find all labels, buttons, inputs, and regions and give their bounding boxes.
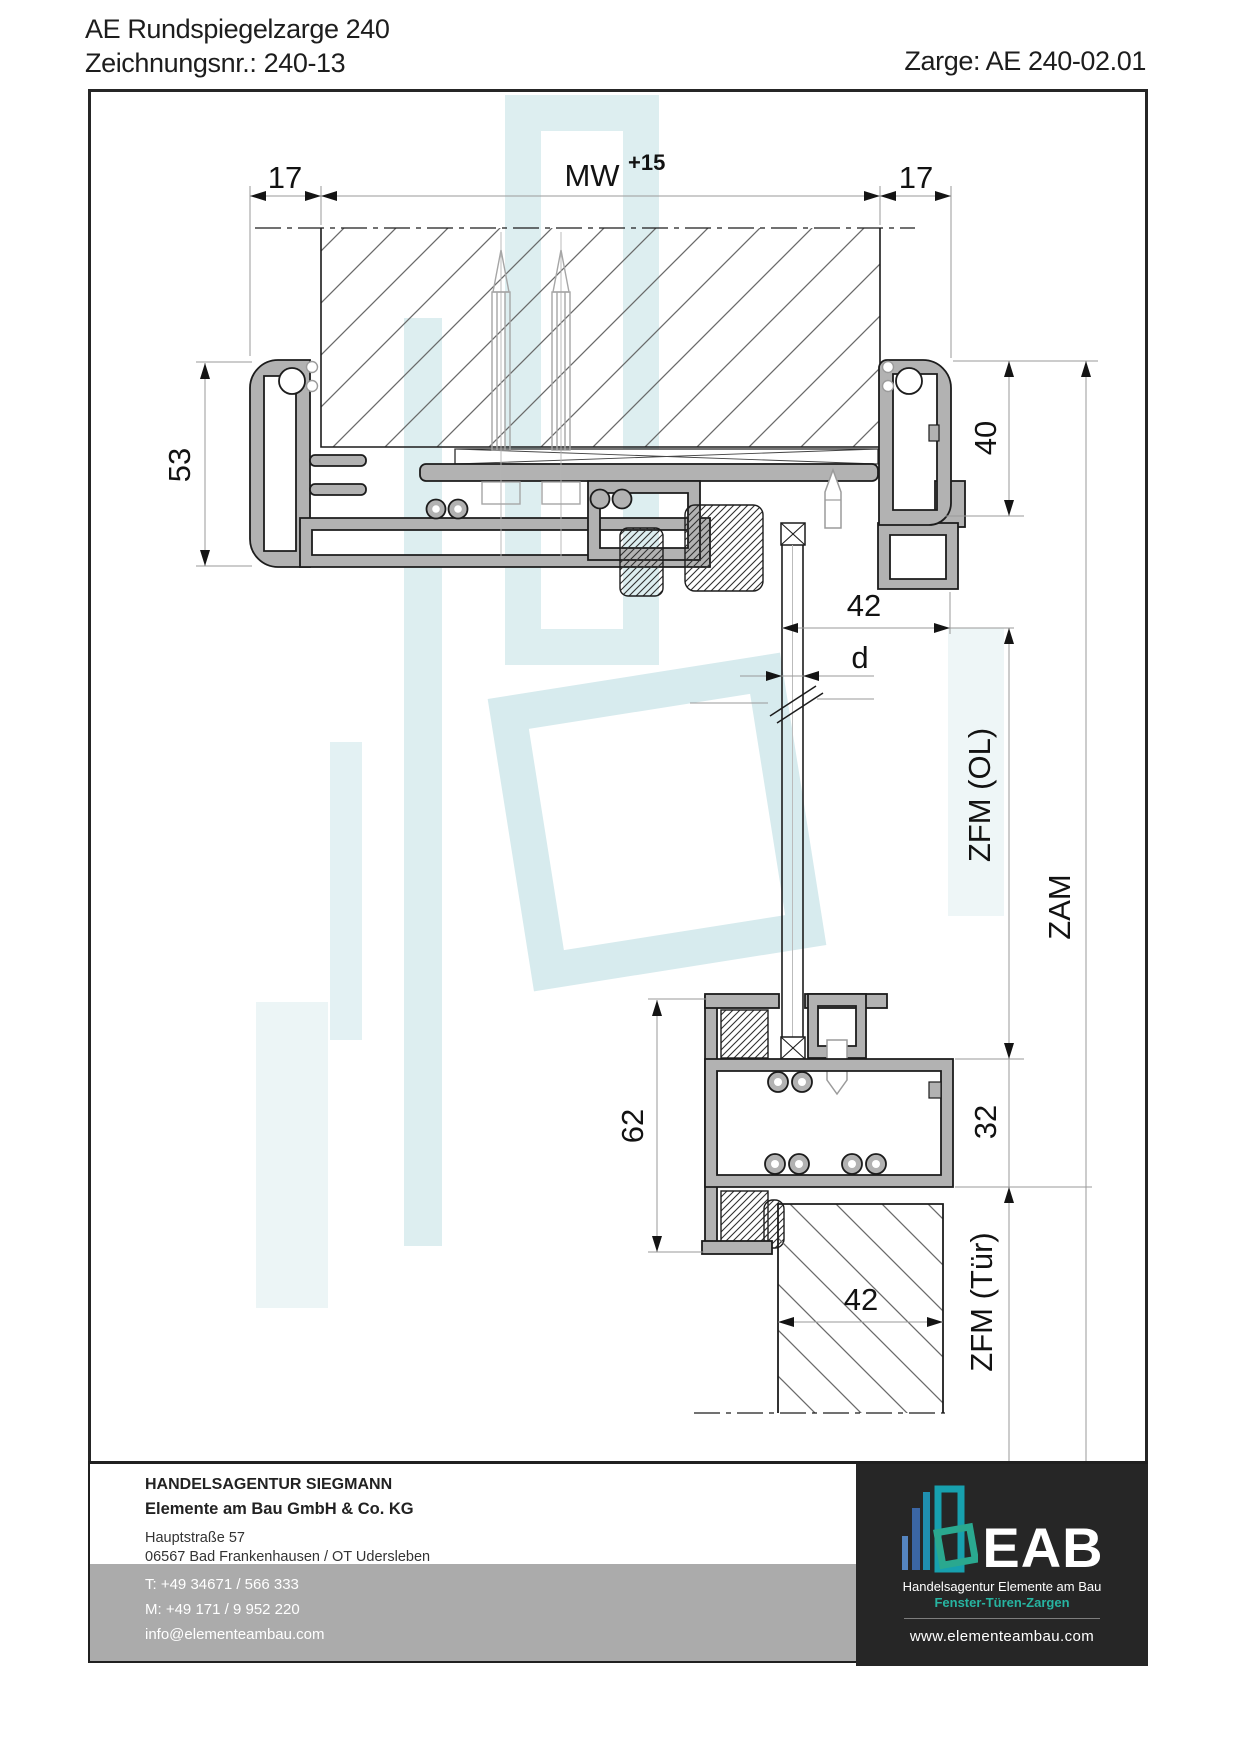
wall-section [255, 228, 915, 447]
dim-62: 62 [615, 1109, 650, 1143]
dim-d: d [851, 640, 868, 675]
dim-32: 32 [968, 1105, 1003, 1139]
eab-wordmark: EAB [982, 1521, 1103, 1574]
address-city: 06567 Bad Frankenhausen / OT Udersleben [145, 1549, 430, 1565]
dim-42-door: 42 [844, 1282, 878, 1317]
logo-subtitle: Handelsagentur Elemente am Bau [903, 1579, 1102, 1594]
dim-top-right: 17 [899, 160, 933, 195]
address-street: Hauptstraße 57 [145, 1530, 245, 1546]
page: AE Rundspiegelzarge 240 Zeichnungsnr.: 2… [0, 0, 1240, 1754]
logo-tagline: Fenster-Türen-Zargen [934, 1595, 1069, 1610]
seal-gasket-lower-top [721, 1010, 768, 1058]
mobile-number: M: +49 171 / 9 952 220 [145, 1601, 300, 1618]
seal-gasket-a [620, 528, 663, 596]
email-address: info@elementeambau.com [145, 1626, 325, 1643]
window-frame-icon [937, 1527, 975, 1565]
dim-mw: MW [564, 158, 620, 193]
logo-divider [904, 1618, 1100, 1619]
eab-logo-mark [900, 1484, 978, 1574]
seal-gasket-b [685, 505, 763, 591]
dim-53: 53 [162, 448, 197, 482]
dim-mw-tolerance: +15 [628, 150, 665, 175]
footer-contact-band: T: +49 34671 / 566 333 M: +49 171 / 9 95… [90, 1564, 856, 1661]
logo-website: www.elementeambau.com [910, 1628, 1094, 1645]
phone-number: T: +49 34671 / 566 333 [145, 1576, 299, 1593]
dim-42-rebate: 42 [847, 588, 881, 623]
company-name: HANDELSAGENTUR SIEGMANN [145, 1476, 392, 1494]
dim-zfm-tuer: ZFM (Tür) [964, 1232, 999, 1371]
dim-zfm-ol: ZFM (OL) [962, 728, 997, 862]
gasket-roll-right [896, 368, 922, 394]
footer-address-block: HANDELSAGENTUR SIEGMANN Elemente am Bau … [90, 1464, 856, 1564]
footer: HANDELSAGENTUR SIEGMANN Elemente am Bau … [88, 1464, 856, 1663]
seal-channel-top [878, 523, 958, 589]
head-bar [420, 464, 878, 481]
frame-profile-right [879, 360, 951, 525]
company-legal-name: Elemente am Bau GmbH & Co. KG [145, 1500, 414, 1519]
seal-gasket-lower-bottom [721, 1191, 768, 1243]
dim-zam: ZAM [1042, 874, 1077, 939]
dim-top-left: 17 [268, 160, 302, 195]
eab-logo: EAB [900, 1484, 1103, 1574]
eab-logo-panel: EAB Handelsagentur Elemente am Bau Fenst… [856, 1464, 1148, 1666]
gasket-roll-left [279, 368, 305, 394]
dim-40: 40 [968, 421, 1003, 455]
